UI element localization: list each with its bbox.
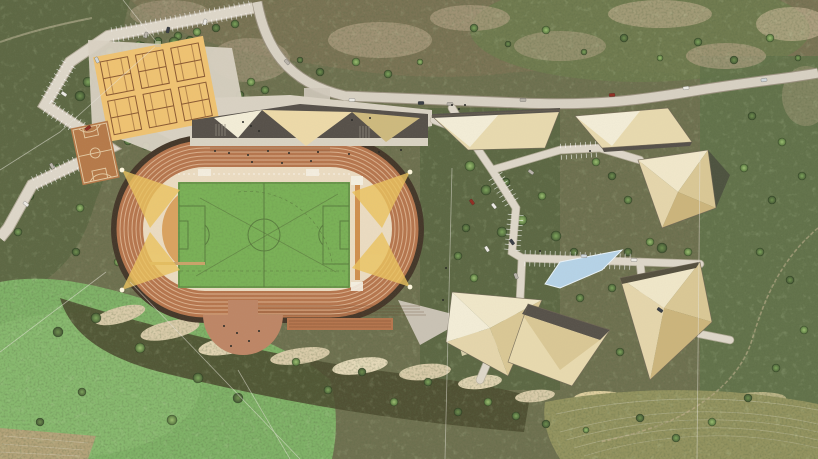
site-plan-rendering bbox=[0, 0, 818, 459]
masterplan-canvas bbox=[0, 0, 818, 459]
photo-grain bbox=[0, 0, 818, 459]
